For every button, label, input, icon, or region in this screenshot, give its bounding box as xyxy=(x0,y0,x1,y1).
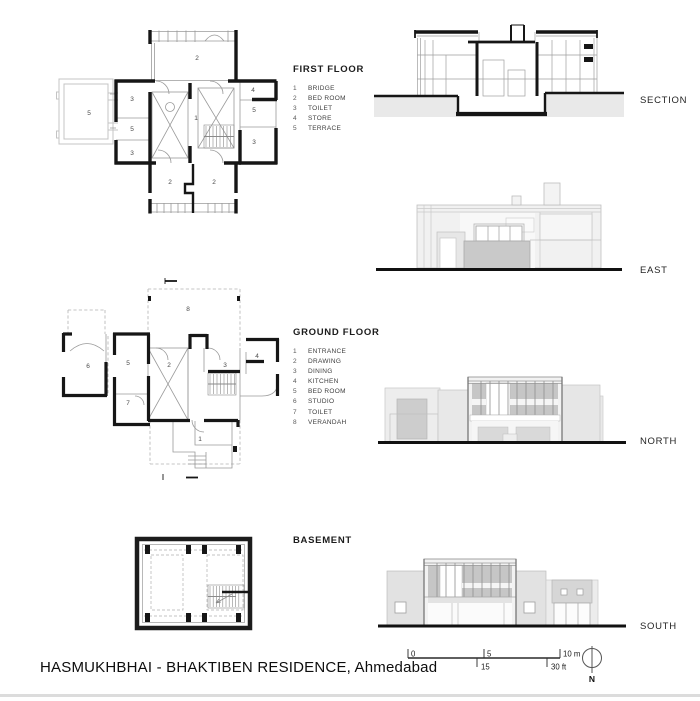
east-label: EAST xyxy=(640,265,668,276)
room-label-toilet: 3 xyxy=(130,96,134,103)
first-floor-plan-title: FIRST FLOOR xyxy=(293,64,364,75)
legend-item-kitchen: 4KITCHEN xyxy=(293,377,380,387)
room-label-bedroom: 2 xyxy=(212,179,216,186)
north-label: NORTH xyxy=(640,436,677,447)
first-floor-plan-drawing: 2 3 5 3 5 1 4 5 3 2 2 xyxy=(52,12,288,222)
room-label-entrance: 1 xyxy=(198,436,202,443)
north-arrow-label: N xyxy=(589,674,595,684)
legend-item-bedroom: 5BED ROOM xyxy=(293,387,380,397)
basement-plan-title: BASEMENT xyxy=(293,535,352,546)
legend-item-toilet: 7TOILET xyxy=(293,408,380,418)
legend-item-bridge: 1BRIDGE xyxy=(293,84,364,94)
room-label-terrace: 5 xyxy=(252,107,256,114)
room-label-store: 4 xyxy=(251,87,255,94)
legend-item-bedroom: 2BED ROOM xyxy=(293,94,364,104)
room-label-toilet: 3 xyxy=(130,150,134,157)
south-label: SOUTH xyxy=(640,621,677,632)
north-elevation-drawing xyxy=(373,358,630,458)
east-elevation-drawing xyxy=(373,182,625,276)
room-label-bedroom: 2 xyxy=(168,179,172,186)
legend-item-toilet: 3TOILET xyxy=(293,104,364,114)
section-label: SECTION xyxy=(640,95,687,106)
room-label-bedroom: 5 xyxy=(126,360,130,367)
room-label-toilet: 3 xyxy=(252,139,256,146)
first-floor-legend: FIRST FLOOR 1BRIDGE 2BED ROOM 3TOILET 4S… xyxy=(293,64,364,134)
scale-bar: 0 5 10 m 15 30 ft xyxy=(400,644,600,688)
footer-divider xyxy=(0,694,700,697)
legend-item-entrance: 1ENTRANCE xyxy=(293,347,380,357)
room-label-verandah: 8 xyxy=(186,306,190,313)
north-arrow: N xyxy=(576,642,610,690)
ground-floor-legend: GROUND FLOOR 1ENTRANCE 2DRAWING 3DINING … xyxy=(293,327,380,428)
room-label-studio: 6 xyxy=(86,363,90,370)
legend-item-drawing: 2DRAWING xyxy=(293,357,380,367)
scale-5: 5 xyxy=(487,650,492,659)
ground-floor-plan-title: GROUND FLOOR xyxy=(293,327,380,338)
room-label-terrace: 5 xyxy=(87,110,91,117)
legend-item-terrace: 5TERRACE xyxy=(293,124,364,134)
room-label-kitchen: 4 xyxy=(255,353,259,360)
section-drawing xyxy=(372,12,628,118)
legend-item-studio: 6STUDIO xyxy=(293,397,380,407)
scale-30ft: 30 ft xyxy=(551,663,567,672)
drawing-sheet: 2 3 5 3 5 1 4 5 3 2 2 FIRST FLOOR 1BRIDG… xyxy=(0,0,700,701)
legend-item-store: 4STORE xyxy=(293,114,364,124)
room-label-terrace: 5 xyxy=(130,126,134,133)
legend-item-dining: 3DINING xyxy=(293,367,380,377)
scale-0: 0 xyxy=(411,650,416,659)
ground-floor-plan-drawing: 8 2 3 4 5 6 7 1 xyxy=(42,278,294,484)
sheet-title: HASMUKHBHAI - BHAKTIBEN RESIDENCE, Ahmed… xyxy=(40,659,437,676)
room-label-bridge: 1 xyxy=(194,115,198,122)
scale-15ft: 15 xyxy=(481,663,490,672)
south-elevation-drawing xyxy=(373,548,630,640)
room-label-dining: 3 xyxy=(223,362,227,369)
room-label-drawing: 2 xyxy=(167,362,171,369)
basement-legend: BASEMENT xyxy=(293,535,352,555)
legend-item-verandah: 8VERANDAH xyxy=(293,418,380,428)
room-label-toilet: 7 xyxy=(126,400,130,407)
basement-plan-drawing xyxy=(130,532,260,634)
room-label-bedroom: 2 xyxy=(195,55,199,62)
